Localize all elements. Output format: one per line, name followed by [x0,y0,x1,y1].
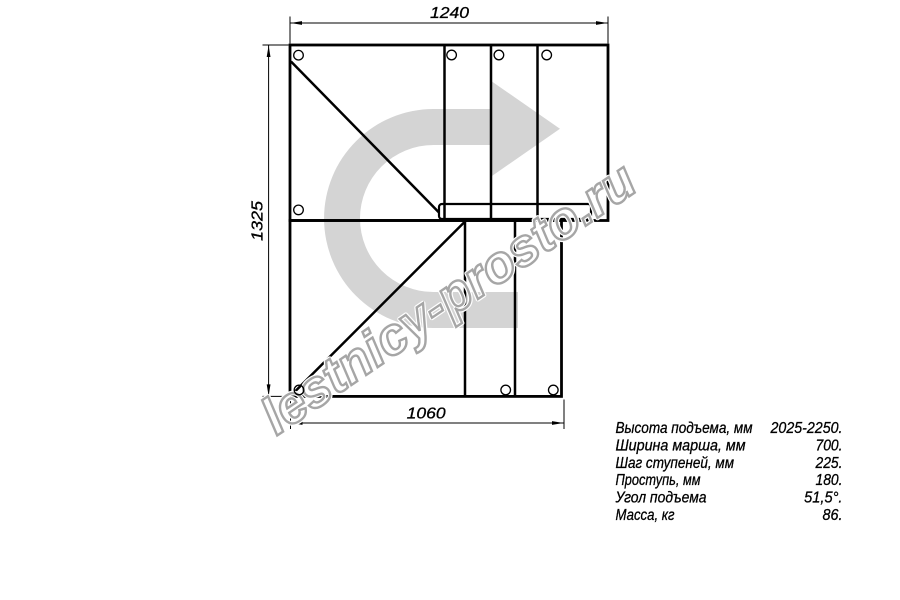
svg-text:86.: 86. [823,507,843,524]
svg-text:1240: 1240 [430,5,469,22]
svg-text:51,5°.: 51,5°. [804,490,842,507]
svg-text:1060: 1060 [407,405,446,422]
svg-text:180.: 180. [816,472,843,489]
svg-text:225.: 225. [815,455,843,472]
svg-text:Ширина марша, мм: Ширина марша, мм [616,437,746,454]
svg-text:Масса, кг: Масса, кг [616,507,675,524]
svg-text:Высота подъема, мм: Высота подъема, мм [616,420,753,437]
svg-text:Проступь, мм: Проступь, мм [616,472,701,489]
svg-text:Угол подъема: Угол подъема [615,490,707,507]
svg-text:1325: 1325 [250,201,267,241]
svg-text:Шаг ступеней, мм: Шаг ступеней, мм [616,455,735,472]
svg-text:2025-2250.: 2025-2250. [770,420,843,437]
svg-text:700.: 700. [816,437,843,454]
